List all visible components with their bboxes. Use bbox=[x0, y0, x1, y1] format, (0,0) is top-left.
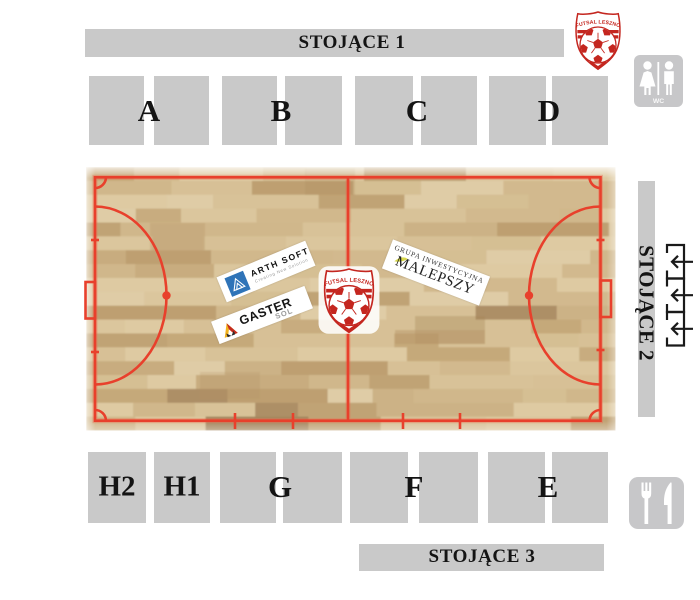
svg-text:WC: WC bbox=[653, 98, 664, 105]
